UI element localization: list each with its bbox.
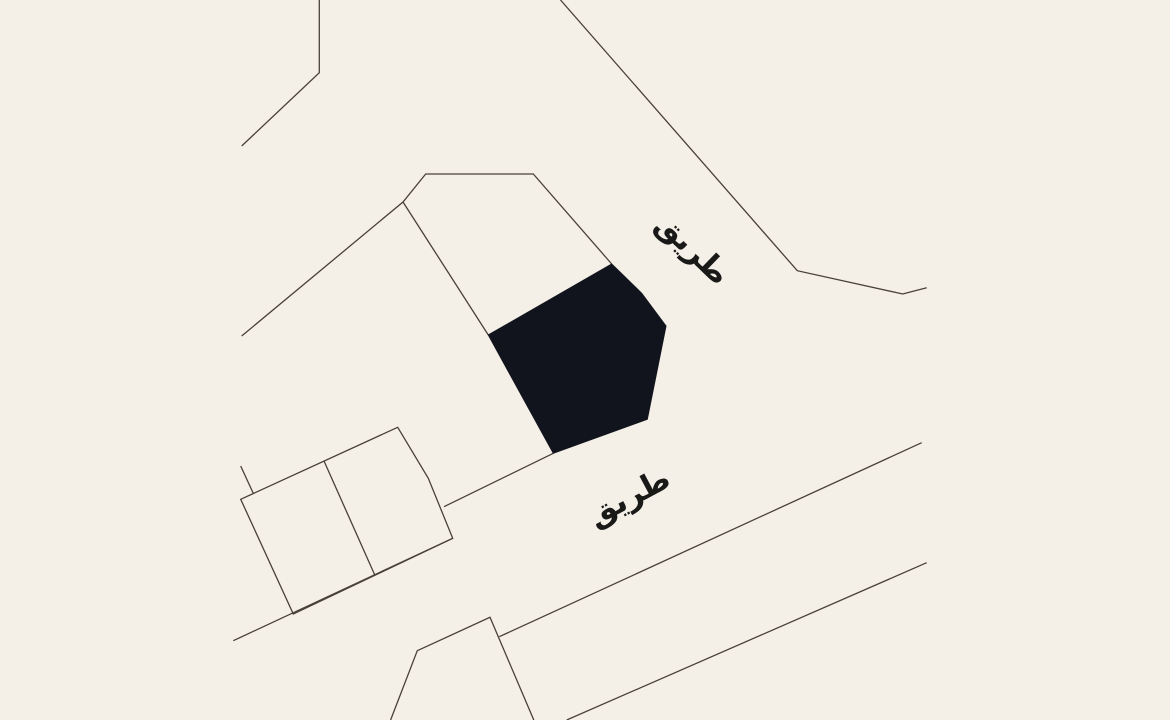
parcel-boundary-south xyxy=(444,453,553,506)
selected-parcel[interactable] xyxy=(488,264,666,453)
road-north-east xyxy=(561,0,927,294)
building-block-outline xyxy=(241,427,453,614)
building-south xyxy=(391,617,534,720)
map-canvas[interactable] xyxy=(0,0,1170,720)
road-north-west xyxy=(242,0,320,146)
road-south-east xyxy=(567,563,927,720)
road-mid-east xyxy=(499,443,921,637)
building-block-spur xyxy=(241,466,254,493)
parcel-boundary-west xyxy=(403,202,488,335)
map-viewport[interactable]: طريق طريق xyxy=(0,0,1170,720)
building-block-divider xyxy=(324,461,375,576)
